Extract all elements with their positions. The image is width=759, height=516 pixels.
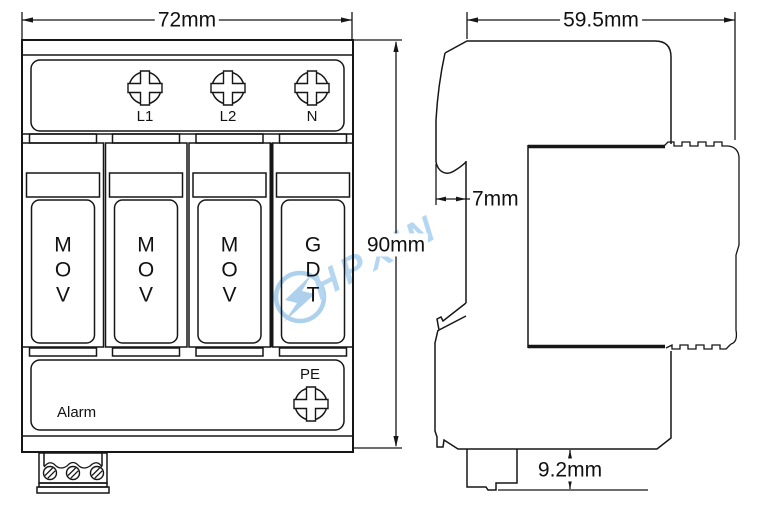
alarm-terminal-block bbox=[37, 453, 109, 493]
side-view-drawing bbox=[435, 41, 739, 490]
pe-screw-icon bbox=[294, 387, 328, 421]
spd-technical-drawing: HPXIN bbox=[0, 0, 759, 516]
mov-module-2-label: M O V bbox=[137, 233, 155, 308]
alarm-screw-icon bbox=[44, 467, 57, 480]
watermark-text: HPXIN bbox=[305, 206, 446, 307]
terminal-label-l2: L2 bbox=[220, 109, 237, 126]
gdt-divider bbox=[270, 143, 274, 347]
pe-label: PE bbox=[300, 367, 320, 384]
side-module-profile bbox=[528, 142, 739, 349]
side-body-top bbox=[445, 41, 671, 144]
din-rail-hook bbox=[437, 303, 466, 330]
dimension-7mm bbox=[436, 164, 470, 205]
front-lip-dimension-label: 7mm bbox=[472, 187, 519, 210]
front-height-dimension-label: 90mm bbox=[364, 233, 428, 256]
watermark: HPXIN bbox=[276, 206, 446, 322]
drawing-linework: HPXIN bbox=[0, 0, 759, 516]
side-front-notch bbox=[436, 162, 466, 173]
gdt-module-label: G D T bbox=[305, 233, 321, 308]
mov-module-1-label: M O V bbox=[54, 233, 72, 308]
front-width-dimension-label: 72mm bbox=[155, 8, 219, 31]
terminal-label-l1: L1 bbox=[137, 109, 154, 126]
terminal-screw-l1-icon bbox=[128, 71, 162, 105]
side-body-front-slant bbox=[436, 53, 445, 162]
rail-offset-dimension-label: 9.2mm bbox=[535, 458, 605, 481]
terminal-screw-n-icon bbox=[295, 71, 329, 105]
alarm-screw-icon bbox=[67, 467, 80, 480]
alarm-screw-icon bbox=[91, 467, 104, 480]
mov-module-3-label: M O V bbox=[221, 233, 239, 308]
din-rail-latch bbox=[467, 449, 517, 490]
terminal-screw-l2-icon bbox=[211, 71, 245, 105]
terminal-label-n: N bbox=[307, 109, 318, 126]
alarm-label: Alarm bbox=[57, 405, 96, 422]
side-depth-dimension-label: 59.5mm bbox=[560, 8, 642, 31]
